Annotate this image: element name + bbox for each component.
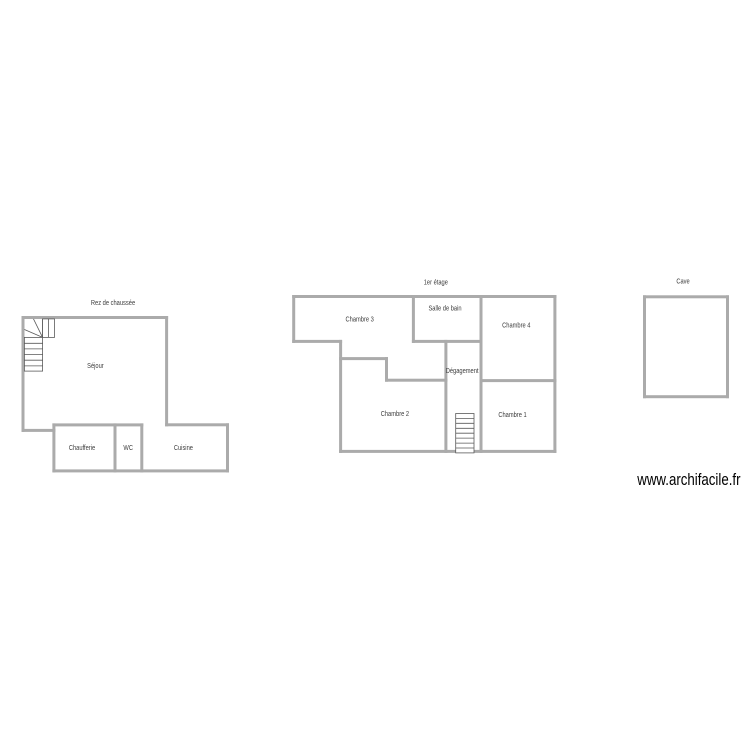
- svg-text:Salle de bain: Salle de bain: [428, 305, 462, 313]
- svg-text:WC: WC: [123, 445, 133, 453]
- svg-text:Rez de chaussée: Rez de chaussée: [91, 300, 136, 308]
- svg-text:www.archifacile.fr: www.archifacile.fr: [636, 472, 740, 489]
- svg-text:1er étage: 1er étage: [424, 279, 449, 287]
- svg-text:Chaufferie: Chaufferie: [69, 445, 96, 453]
- svg-text:Dégagement: Dégagement: [446, 367, 479, 375]
- svg-text:Séjour: Séjour: [87, 363, 104, 371]
- svg-text:Chambre 3: Chambre 3: [346, 316, 375, 324]
- svg-text:Chambre 2: Chambre 2: [381, 411, 410, 419]
- svg-text:Chambre 1: Chambre 1: [498, 412, 527, 420]
- svg-text:Chambre 4: Chambre 4: [502, 322, 531, 330]
- svg-text:Cave: Cave: [676, 278, 690, 286]
- svg-text:Cuisine: Cuisine: [174, 445, 194, 453]
